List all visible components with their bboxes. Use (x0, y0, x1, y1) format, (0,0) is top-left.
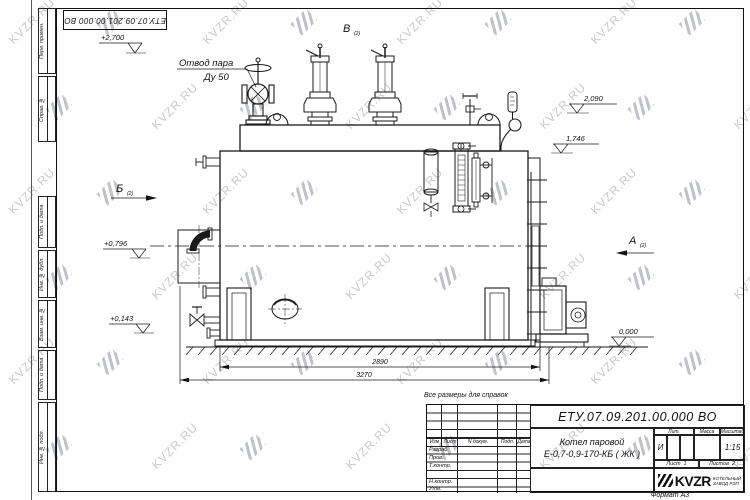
massa-value-cell (694, 435, 720, 460)
empty-cell (530, 468, 654, 493)
sheets-label: Листов (709, 461, 729, 467)
margin-field-podp-data-2: Подп. и дата (38, 350, 56, 400)
top-stamp: ЕТУ.07.09.201.00.000 ВО (63, 10, 167, 30)
sheet-value: 1 (684, 461, 687, 467)
format-label: Формат А3 (596, 492, 744, 499)
lit-header: Лит. (654, 428, 694, 435)
sheet-edge-line (31, 0, 32, 500)
margin-field-inv-podl: Инв. № подл. (38, 402, 56, 492)
massa-header: Масса (694, 428, 720, 435)
title-block: Изм Лист N докум. Подп. Дата Разраб. Про… (426, 404, 744, 492)
sheet-cell: Лист 1 (654, 460, 699, 468)
sheet-label: Лист (666, 461, 680, 467)
masshtab-header: Масштаб (720, 428, 745, 435)
doc-number-cell: ЕТУ.07.09.201.00.000 ВО (530, 405, 745, 428)
rev-header-list: Лист (442, 438, 458, 446)
margin-field-inv-dubl: Инв. № дубл. (38, 250, 56, 298)
lit-value: И (658, 443, 664, 452)
margin-field-vzam-inv: Взам. инв. № (38, 300, 56, 348)
doc-number: ЕТУ.07.09.201.00.000 ВО (558, 410, 717, 424)
sig-row-razrab: Разраб. (429, 447, 457, 455)
sig-row-nkontr: Н.контр. (429, 478, 457, 486)
scale-value-cell: 1:15 (720, 435, 745, 460)
rev-header-data: Дата (517, 438, 531, 446)
margin-field-sprav-n: Справ. № (38, 76, 56, 142)
rev-header-izm: Изм (427, 438, 442, 446)
margin-field-perv-primen: Перв. примен. (38, 8, 56, 74)
product-name-line2: Е-0,7-0,9-170-КБ ( ЖК ) (544, 448, 640, 460)
sheets-cell: Листов 2 (699, 460, 745, 468)
margin-field-podp-data-1: Подп. и дата (38, 196, 56, 248)
revision-rows (427, 405, 531, 438)
lit-cell-3 (680, 435, 694, 460)
top-stamp-doc-number: ЕТУ.07.09.201.00.000 ВО (64, 16, 166, 25)
lit-cell-2 (667, 435, 680, 460)
sig-row-tkontr: Т.контр. (429, 462, 457, 470)
sig-row-prov: Пров. (429, 454, 457, 462)
rev-header-ndokum: N докум. (458, 438, 498, 446)
lit-value-cell: И (654, 435, 667, 460)
sig-row-utv: Утв. (429, 486, 457, 494)
drawing-sheet: KVZR.RUKVZR.RUKVZR.RUKVZR.RUKVZR.RUKVZR.… (0, 0, 750, 500)
sig-row-blank (429, 470, 457, 478)
sheets-value: 2 (732, 461, 735, 467)
product-name-cell: Котел паровой Е-0,7-0,9-170-КБ ( ЖК ) (530, 428, 654, 468)
kvzr-logo-icon (658, 474, 673, 487)
kvzr-logo-text: KVZR (675, 473, 711, 489)
scale-value: 1:15 (725, 443, 741, 452)
rev-header-podp: Подп. (498, 438, 517, 446)
company-logo-cell: KVZR КОТЕЛЬНЫЙ ЗАВОД РЭП (654, 468, 745, 493)
company-name-line2: ЗАВОД РЭП (713, 481, 741, 486)
product-name-line1: Котел паровой (544, 436, 640, 448)
